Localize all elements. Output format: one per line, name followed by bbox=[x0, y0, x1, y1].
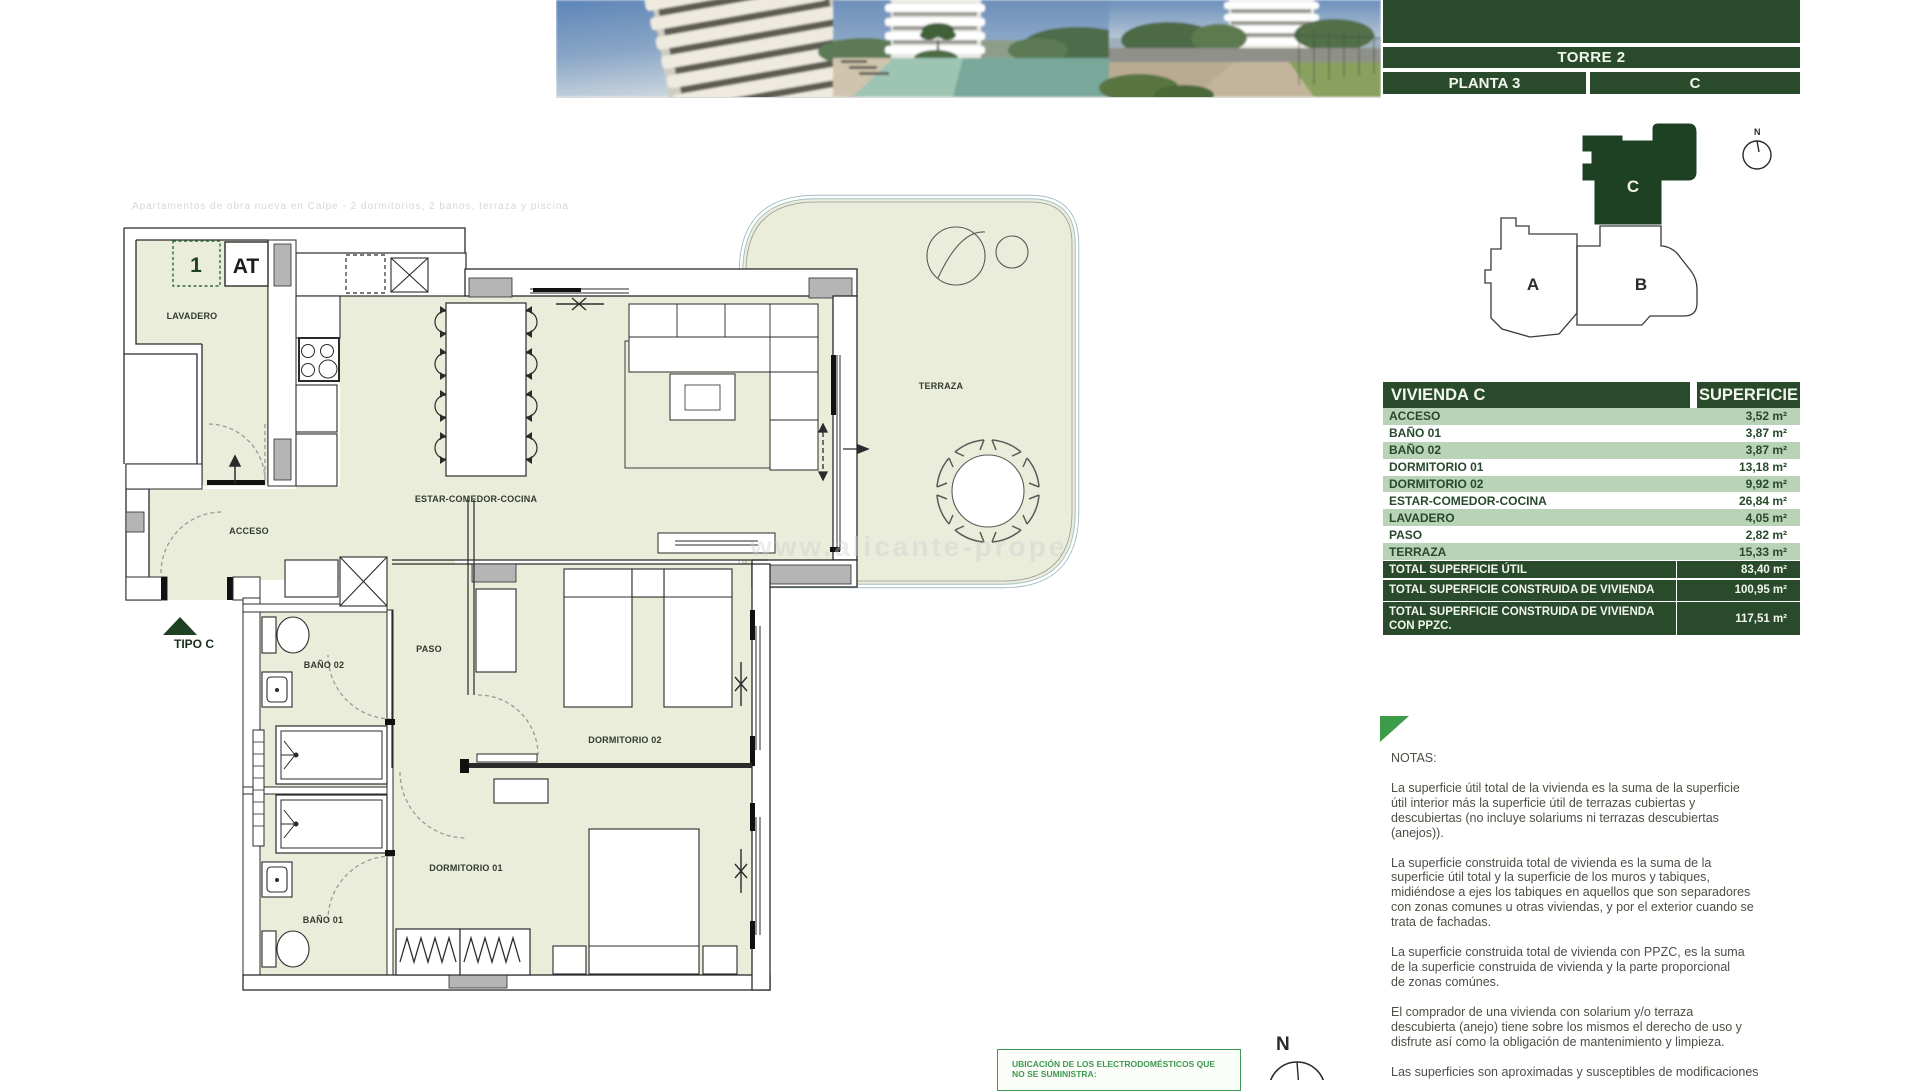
svg-text:B: B bbox=[1635, 275, 1647, 294]
svg-text:TERRAZA: TERRAZA bbox=[919, 381, 964, 391]
svg-text:ACCESO: ACCESO bbox=[229, 526, 269, 536]
svg-text:A: A bbox=[1527, 275, 1539, 294]
svg-text:ESTAR-COMEDOR-COCINA: ESTAR-COMEDOR-COCINA bbox=[415, 494, 538, 504]
svg-text:N: N bbox=[1276, 1034, 1290, 1055]
svg-text:1: 1 bbox=[190, 254, 202, 277]
svg-text:C: C bbox=[1627, 177, 1639, 196]
svg-text:PASO: PASO bbox=[416, 644, 442, 654]
svg-text:www.alicante-prope: www.alicante-prope bbox=[749, 531, 1067, 562]
svg-text:AT: AT bbox=[233, 255, 260, 278]
svg-text:Apartamentos de obra nueva en: Apartamentos de obra nueva en Calpe - 2 … bbox=[132, 201, 569, 212]
svg-text:TIPO C: TIPO C bbox=[174, 637, 214, 651]
svg-text:DORMITORIO 01: DORMITORIO 01 bbox=[429, 863, 502, 873]
svg-text:DORMITORIO 02: DORMITORIO 02 bbox=[588, 735, 661, 745]
svg-text:LAVADERO: LAVADERO bbox=[167, 311, 218, 321]
svg-text:BAÑO 02: BAÑO 02 bbox=[304, 660, 344, 670]
svg-text:N: N bbox=[1754, 127, 1761, 137]
svg-text:BAÑO 01: BAÑO 01 bbox=[303, 915, 343, 925]
